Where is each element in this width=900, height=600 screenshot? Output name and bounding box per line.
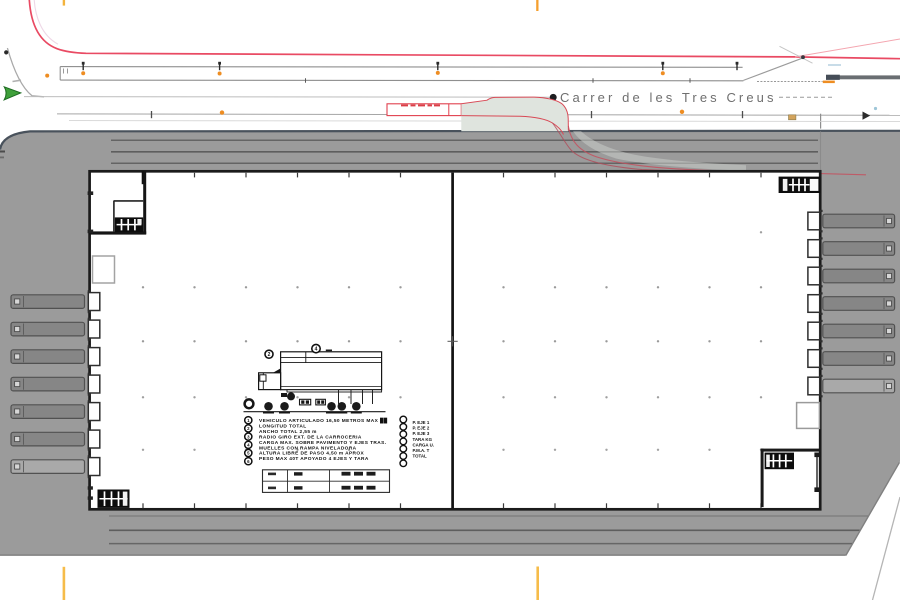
svg-text:TARA KG: TARA KG	[413, 437, 433, 442]
svg-text:TOTAL: TOTAL	[413, 454, 428, 459]
svg-text:ANCHO TOTAL 2,55 m: ANCHO TOTAL 2,55 m	[259, 429, 317, 435]
svg-text:2: 2	[268, 352, 271, 358]
svg-text:P. EJE 3: P. EJE 3	[413, 431, 430, 436]
svg-text:P. EJE 2: P. EJE 2	[413, 426, 430, 431]
svg-text:LONGITUD TOTAL: LONGITUD TOTAL	[259, 423, 307, 429]
svg-text:CARGA U.: CARGA U.	[413, 442, 435, 447]
svg-text:VEHICULO ARTICULADO 16,50 METR: VEHICULO ARTICULADO 16,50 METROS MAX ██	[259, 417, 388, 424]
svg-text:CARGA MAX. SOBRE PAVIMENTO Y E: CARGA MAX. SOBRE PAVIMENTO Y EJES TRAS.	[259, 440, 386, 446]
svg-text:4: 4	[315, 347, 318, 353]
svg-text:P. EJE 1: P. EJE 1	[413, 420, 430, 425]
svg-text:RADIO GIRO EXT. DE LA CARROCER: RADIO GIRO EXT. DE LA CARROCERIA	[259, 434, 362, 440]
svg-text:Carrer de les Tres Creus: Carrer de les Tres Creus	[560, 90, 775, 105]
svg-text:ALTURA LIBRE DE PASO 4,50 m AP: ALTURA LIBRE DE PASO 4,50 m APROX	[259, 451, 365, 457]
svg-text:MUELLES CON RAMPA NIVELADORA: MUELLES CON RAMPA NIVELADORA	[259, 445, 357, 451]
svg-text:PESO MAX 40T APOYADO 4 EJES Y: PESO MAX 40T APOYADO 4 EJES Y TARA	[259, 456, 369, 462]
svg-text:P.M.A. T: P.M.A. T	[413, 448, 430, 453]
